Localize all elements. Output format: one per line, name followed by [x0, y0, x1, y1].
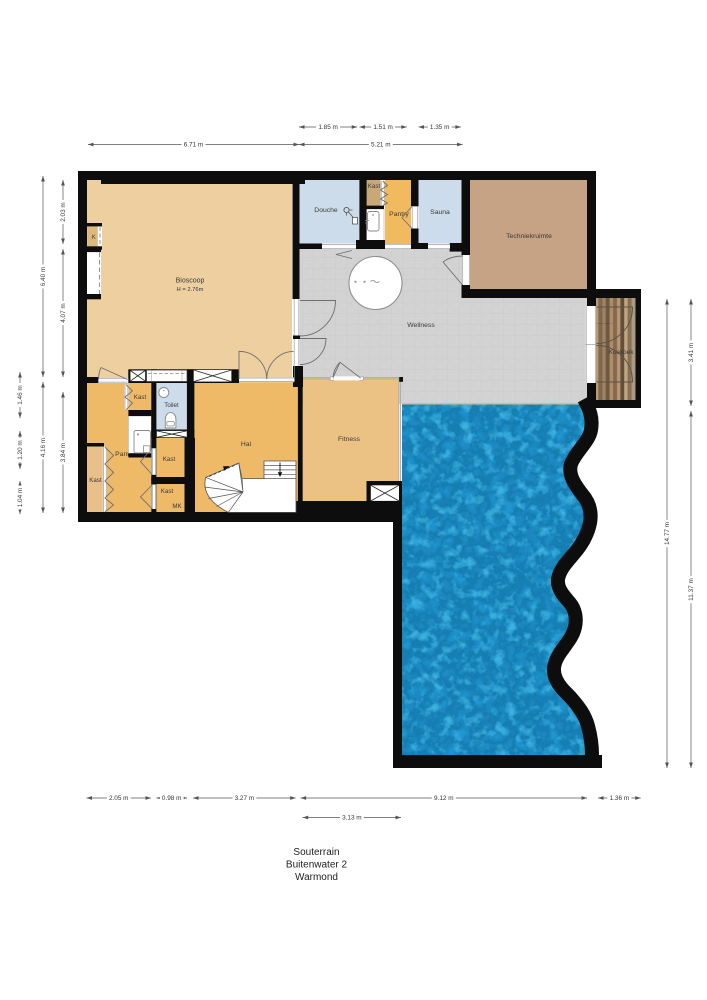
svg-text:Techniekruimte: Techniekruimte — [506, 233, 552, 240]
svg-text:6.71 m: 6.71 m — [184, 142, 204, 149]
svg-text:Buitenwater 2: Buitenwater 2 — [286, 860, 348, 871]
svg-text:H = 2.76m: H = 2.76m — [177, 287, 204, 293]
svg-text:Kast: Kast — [163, 456, 176, 463]
svg-text:MK: MK — [172, 503, 182, 510]
svg-text:1.35 m: 1.35 m — [430, 124, 450, 131]
svg-text:3.13 m: 3.13 m — [342, 815, 362, 822]
svg-text:Kast: Kast — [134, 394, 147, 401]
svg-text:Pantry: Pantry — [389, 211, 409, 218]
svg-text:6.40 m: 6.40 m — [40, 267, 47, 287]
svg-text:3.41 m: 3.41 m — [688, 343, 695, 363]
svg-text:4.07 m: 4.07 m — [60, 303, 67, 323]
svg-text:1.36 m: 1.36 m — [610, 795, 630, 802]
svg-text:K: K — [92, 235, 96, 241]
svg-text:1.85 m: 1.85 m — [318, 124, 338, 131]
svg-text:5.21 m: 5.21 m — [371, 142, 391, 149]
svg-text:14.77 m: 14.77 m — [664, 522, 671, 545]
svg-text:Fitness: Fitness — [338, 436, 361, 443]
svg-text:3.27 m: 3.27 m — [235, 795, 255, 802]
svg-text:1.04 m: 1.04 m — [17, 488, 24, 508]
svg-text:Bioscoop: Bioscoop — [176, 278, 205, 285]
svg-text:Douche: Douche — [314, 207, 338, 214]
svg-text:0.98 m: 0.98 m — [162, 795, 182, 802]
svg-text:Kast: Kast — [368, 183, 381, 190]
svg-text:2.05 m: 2.05 m — [109, 795, 129, 802]
svg-text:9.12 m: 9.12 m — [434, 795, 454, 802]
svg-text:Kast: Kast — [161, 488, 174, 495]
svg-text:Kast: Kast — [89, 477, 102, 484]
svg-text:1.51 m: 1.51 m — [373, 124, 393, 131]
svg-text:Wellness: Wellness — [407, 322, 435, 329]
svg-text:Sauna: Sauna — [430, 209, 450, 216]
svg-text:3.84 m: 3.84 m — [60, 443, 67, 463]
svg-text:Souterrain: Souterrain — [293, 847, 339, 858]
svg-text:Warmond: Warmond — [295, 872, 338, 883]
svg-text:2.03 m: 2.03 m — [60, 202, 67, 222]
svg-text:1.46 m: 1.46 m — [17, 385, 24, 405]
svg-text:4.16 m: 4.16 m — [40, 438, 47, 458]
svg-text:Toilet: Toilet — [164, 402, 179, 409]
svg-text:11.37 m: 11.37 m — [688, 578, 695, 601]
svg-text:1.20 m: 1.20 m — [17, 440, 24, 460]
svg-text:Hal: Hal — [241, 441, 252, 448]
